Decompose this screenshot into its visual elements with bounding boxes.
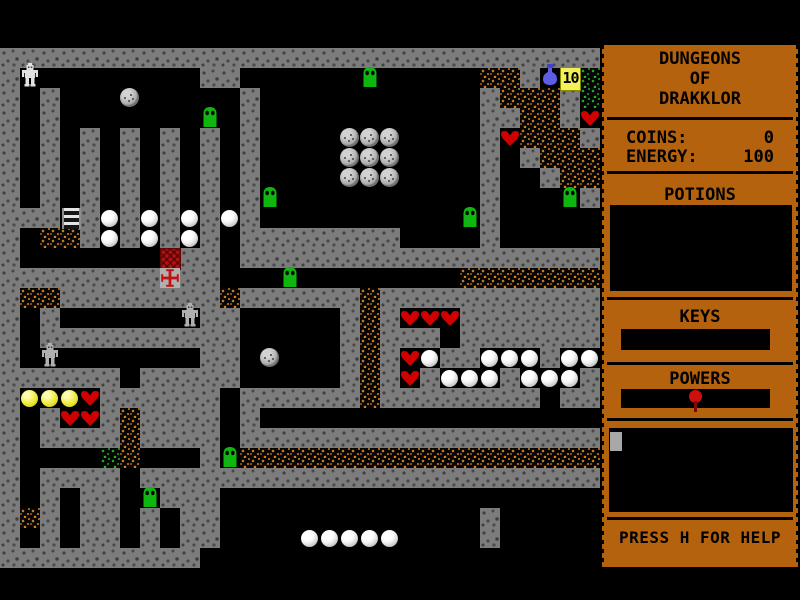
wall-tile (0, 428, 20, 448)
wall-tile (120, 208, 140, 228)
heart-tile (400, 308, 420, 328)
wall-tile (560, 308, 580, 328)
wall-tile (340, 228, 360, 248)
divider (607, 297, 793, 300)
dirt-tile (580, 168, 600, 188)
wall-tile (200, 468, 220, 488)
wall-tile (140, 508, 160, 528)
pearl-tile (220, 208, 240, 228)
wall-tile (580, 188, 600, 208)
wall-tile (560, 48, 580, 68)
wall-tile (100, 468, 120, 488)
wall-tile (60, 48, 80, 68)
wall-tile (160, 48, 180, 68)
wall-tile (0, 508, 20, 528)
wall-tile (40, 488, 60, 508)
pearl-sprite (561, 370, 578, 387)
wall-tile (400, 248, 420, 268)
wall-tile (160, 288, 180, 308)
powers-label: POWERS (602, 370, 798, 388)
wall-tile (80, 288, 100, 308)
wall-tile (480, 468, 500, 488)
wall-tile (80, 328, 100, 348)
wall-tile (0, 48, 20, 68)
wall-tile (540, 308, 560, 328)
boulder-tile (260, 348, 280, 368)
potions-inventory-box (610, 205, 792, 291)
dirt-tile (480, 268, 500, 288)
wall-tile (160, 208, 180, 228)
wall-tile (580, 368, 600, 388)
game-title-line2: OF (602, 70, 798, 89)
dirt-tile (20, 288, 40, 308)
wall-tile (40, 188, 60, 208)
heart-tile (420, 308, 440, 328)
wall-tile (140, 408, 160, 428)
wall-tile (320, 428, 340, 448)
keys-label: KEYS (602, 308, 798, 326)
boulder-tile (340, 128, 360, 148)
pearl-tile (560, 368, 580, 388)
wall-tile (520, 148, 540, 168)
wall-tile (240, 128, 260, 148)
wall-tile (160, 368, 180, 388)
wall-tile (0, 368, 20, 388)
dirt-tile (500, 88, 520, 108)
wall-tile (20, 548, 40, 568)
wall-tile (540, 428, 560, 448)
wall-tile (180, 488, 200, 508)
wall-tile (180, 428, 200, 448)
dungeon-map[interactable]: 10 (0, 0, 600, 600)
wall-tile (120, 148, 140, 168)
boulder-sprite (120, 88, 139, 107)
wall-tile (220, 68, 240, 88)
heart-tile (400, 368, 420, 388)
wall-tile (300, 468, 320, 488)
wall-tile (40, 548, 60, 568)
dirt-tile (520, 448, 540, 468)
wall-tile (260, 428, 280, 448)
wall-tile (460, 388, 480, 408)
wall-tile (520, 328, 540, 348)
heart-tile (400, 348, 420, 368)
dirt-tile (580, 268, 600, 288)
wall-tile (200, 448, 220, 468)
boulder-sprite (340, 128, 359, 147)
wall-tile (180, 268, 200, 288)
wall-tile (120, 328, 140, 348)
wall-tile (300, 388, 320, 408)
pearl-tile (180, 228, 200, 248)
wall-tile (180, 388, 200, 408)
wall-tile (280, 288, 300, 308)
wall-tile (140, 328, 160, 348)
boulder-tile (380, 148, 400, 168)
wall-tile (220, 468, 240, 488)
dirt-tile (580, 448, 600, 468)
wall-tile (80, 48, 100, 68)
wall-tile (40, 168, 60, 188)
ladder-sprite (62, 208, 81, 229)
wall-tile (140, 388, 160, 408)
wall-tile (0, 208, 20, 228)
sidebar-right-edge (796, 45, 799, 567)
wall-tile (500, 308, 520, 328)
dirt-tile (400, 448, 420, 468)
wall-tile (520, 248, 540, 268)
wall-tile (580, 288, 600, 308)
dirt-tile (460, 268, 480, 288)
wall-tile (140, 48, 160, 68)
wall-tile (460, 428, 480, 448)
green-dirt-tile (100, 448, 120, 468)
pearl-sprite (381, 530, 398, 547)
boulder-sprite (340, 148, 359, 167)
wall-tile (460, 288, 480, 308)
wall-tile (220, 368, 240, 388)
wall-tile (160, 468, 180, 488)
wall-tile (400, 388, 420, 408)
heart-tile (80, 388, 100, 408)
divider (607, 418, 793, 421)
pearl-tile (500, 348, 520, 368)
wall-tile (380, 388, 400, 408)
red-cross-tile (160, 268, 180, 288)
pearl-tile (480, 348, 500, 368)
pearl-sprite (301, 530, 318, 547)
wall-tile (100, 428, 120, 448)
wall-tile (500, 468, 520, 488)
wall-tile (120, 288, 140, 308)
pearl-tile (360, 528, 380, 548)
dirt-tile (580, 148, 600, 168)
wall-tile (440, 248, 460, 268)
pearl-sprite (521, 350, 538, 367)
pearl-sprite (481, 370, 498, 387)
wall-tile (0, 128, 20, 148)
game-title-line1: DUNGEONS (602, 50, 798, 69)
wall-tile (500, 388, 520, 408)
wall-tile (140, 548, 160, 568)
heart-tile (500, 128, 520, 148)
pearl-sprite (181, 230, 198, 247)
wall-tile (420, 368, 440, 388)
slime-tile (560, 188, 580, 208)
wall-tile (480, 108, 500, 128)
wall-tile (40, 208, 60, 228)
sidebar-left-edge (601, 45, 604, 567)
dirt-tile (340, 448, 360, 468)
pearl-sprite (561, 350, 578, 367)
wall-tile (220, 308, 240, 328)
wall-tile (420, 248, 440, 268)
wall-tile (80, 228, 100, 248)
dirt-tile (360, 388, 380, 408)
pearl-tile (440, 368, 460, 388)
wall-tile (120, 388, 140, 408)
wall-tile (160, 428, 180, 448)
statue-tile (40, 348, 60, 368)
wall-tile (500, 108, 520, 128)
wall-tile (200, 148, 220, 168)
wall-tile (80, 528, 100, 548)
wall-tile (480, 388, 500, 408)
wall-tile (160, 408, 180, 428)
game-title-line3: DRAKKLOR (602, 90, 798, 109)
pearl-tile (520, 368, 540, 388)
wall-tile (360, 428, 380, 448)
wall-tile (160, 488, 180, 508)
wall-tile (580, 468, 600, 488)
wall-tile (80, 488, 100, 508)
wall-tile (120, 128, 140, 148)
wall-tile (240, 188, 260, 208)
wall-tile (240, 168, 260, 188)
boulder-tile (360, 128, 380, 148)
boulder-sprite (260, 348, 279, 367)
wall-tile (0, 348, 20, 368)
wall-tile (360, 228, 380, 248)
wall-tile (200, 48, 220, 68)
wall-tile (20, 268, 40, 288)
wall-tile (0, 248, 20, 268)
wall-tile (380, 468, 400, 488)
energy-value: 100 (743, 148, 774, 167)
wall-tile (100, 508, 120, 528)
dirt-tile (540, 88, 560, 108)
wall-tile (200, 188, 220, 208)
wall-tile (540, 168, 560, 188)
wall-tile (180, 328, 200, 348)
pearl-sprite (141, 210, 158, 227)
pearl-tile (100, 228, 120, 248)
wall-tile (500, 368, 520, 388)
wall-tile (480, 528, 500, 548)
wall-tile (260, 48, 280, 68)
heart-tile (440, 308, 460, 328)
dirt-tile (120, 448, 140, 468)
wall-tile (340, 288, 360, 308)
dirt-tile (60, 228, 80, 248)
dirt-tile (480, 448, 500, 468)
wall-tile (340, 48, 360, 68)
wall-tile (440, 48, 460, 68)
wall-tile (480, 168, 500, 188)
wall-tile (40, 108, 60, 128)
wall-tile (580, 128, 600, 148)
wall-tile (140, 368, 160, 388)
dirt-tile (520, 108, 540, 128)
pearl-sprite (341, 530, 358, 547)
wall-tile (160, 548, 180, 568)
wall-tile (340, 348, 360, 368)
pearl-sprite (481, 350, 498, 367)
wall-tile (180, 248, 200, 268)
wall-tile (200, 268, 220, 288)
heart-tile (580, 108, 600, 128)
help-text: PRESS H FOR HELP (602, 529, 798, 547)
pearl-sprite (441, 370, 458, 387)
wall-tile (160, 388, 180, 408)
wall-tile (120, 548, 140, 568)
wall-tile (520, 288, 540, 308)
wall-tile (140, 428, 160, 448)
wall-tile (320, 468, 340, 488)
wall-tile (480, 288, 500, 308)
game-screen: 10 DUNGEONS OF DRAKKLOR COINS: 0 ENERGY:… (0, 0, 800, 600)
heart-tile (60, 408, 80, 428)
wall-tile (460, 328, 480, 348)
pearl-tile (180, 208, 200, 228)
dirt-tile (380, 448, 400, 468)
wall-tile (380, 328, 400, 348)
wall-tile (580, 388, 600, 408)
wall-tile (460, 348, 480, 368)
pearl-sprite (141, 230, 158, 247)
wall-tile (40, 48, 60, 68)
wall-tile (200, 508, 220, 528)
dirt-tile (440, 448, 460, 468)
wall-tile (480, 88, 500, 108)
wall-tile (200, 68, 220, 88)
wall-tile (440, 388, 460, 408)
wall-tile (340, 468, 360, 488)
pearl-tile (580, 348, 600, 368)
pearl-tile (560, 348, 580, 368)
wall-tile (280, 468, 300, 488)
divider (607, 171, 793, 174)
dirt-tile (460, 448, 480, 468)
wall-tile (0, 548, 20, 568)
wall-tile (120, 48, 140, 68)
wall-tile (220, 348, 240, 368)
wall-tile (400, 428, 420, 448)
slime-tile (460, 208, 480, 228)
coins-value: 0 (764, 129, 774, 148)
wall-tile (560, 248, 580, 268)
dirt-tile (540, 148, 560, 168)
wall-tile (560, 108, 580, 128)
slime-tile (360, 68, 380, 88)
wall-tile (500, 428, 520, 448)
wall-tile (280, 388, 300, 408)
wall-tile (120, 228, 140, 248)
dirt-tile (360, 348, 380, 368)
wall-tile (160, 188, 180, 208)
wall-tile (200, 488, 220, 508)
wall-tile (80, 468, 100, 488)
wall-tile (440, 468, 460, 488)
wall-tile (480, 188, 500, 208)
wall-tile (220, 48, 240, 68)
boulder-sprite (380, 128, 399, 147)
dirt-tile (360, 368, 380, 388)
divider (607, 117, 793, 120)
pearl-tile (420, 348, 440, 368)
green-dirt-tile (580, 68, 600, 88)
wall-tile (80, 168, 100, 188)
boulder-tile (380, 128, 400, 148)
wall-tile (80, 548, 100, 568)
wall-tile (0, 228, 20, 248)
wall-tile (0, 268, 20, 288)
wall-tile (40, 508, 60, 528)
pearl-sprite (101, 210, 118, 227)
wall-tile (0, 388, 20, 408)
wall-tile (440, 428, 460, 448)
pearl-tile (520, 348, 540, 368)
wall-tile (240, 288, 260, 308)
coins-label: COINS: (626, 129, 687, 148)
wall-tile (200, 428, 220, 448)
wall-tile (280, 428, 300, 448)
boulder-tile (360, 168, 380, 188)
wall-tile (380, 48, 400, 68)
wall-tile (240, 428, 260, 448)
wall-tile (240, 408, 260, 428)
pearl-sprite (521, 370, 538, 387)
dirt-tile (540, 448, 560, 468)
wall-tile (420, 388, 440, 408)
wall-tile (80, 268, 100, 288)
dirt-tile (520, 88, 540, 108)
wall-tile (400, 468, 420, 488)
pearl-tile (140, 208, 160, 228)
pearl-sprite (101, 230, 118, 247)
wall-tile (180, 548, 200, 568)
wall-tile (560, 468, 580, 488)
wall-tile (520, 68, 540, 88)
yellow-ball-sprite (41, 390, 58, 407)
wall-tile (40, 268, 60, 288)
pearl-sprite (541, 370, 558, 387)
wall-tile (160, 328, 180, 348)
wall-tile (260, 228, 280, 248)
wall-tile (140, 528, 160, 548)
wall-tile (60, 368, 80, 388)
wall-tile (460, 468, 480, 488)
wall-tile (460, 248, 480, 268)
boulder-sprite (380, 168, 399, 187)
dirt-tile (40, 228, 60, 248)
wall-tile (100, 328, 120, 348)
wall-tile (420, 288, 440, 308)
wall-tile (160, 168, 180, 188)
wall-tile (0, 108, 20, 128)
boulder-tile (340, 168, 360, 188)
dirt-tile (520, 128, 540, 148)
wall-tile (340, 388, 360, 408)
slime-tile (260, 188, 280, 208)
dirt-tile (560, 268, 580, 288)
wall-tile (0, 488, 20, 508)
wall-tile (540, 328, 560, 348)
wall-tile (260, 248, 280, 268)
energy-stat: ENERGY: 100 (602, 148, 798, 167)
wall-tile (120, 268, 140, 288)
wall-tile (380, 228, 400, 248)
wall-tile (40, 368, 60, 388)
wall-tile (560, 88, 580, 108)
dirt-tile (500, 68, 520, 88)
coins-stat: COINS: 0 (602, 129, 798, 148)
wall-tile (100, 388, 120, 408)
slime-tile (220, 448, 240, 468)
wall-tile (520, 468, 540, 488)
wall-tile (180, 48, 200, 68)
wall-tile (0, 148, 20, 168)
